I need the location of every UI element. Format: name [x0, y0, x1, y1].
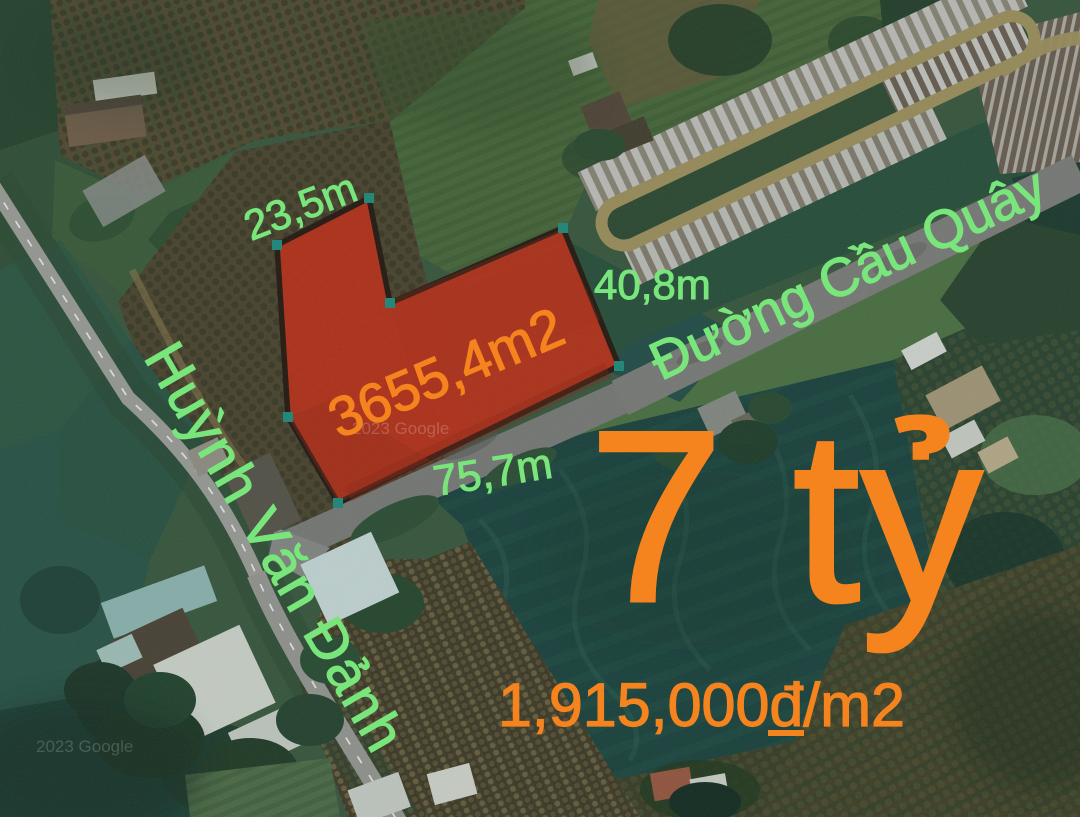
- svg-text:40,8m: 40,8m: [594, 261, 711, 308]
- svg-text:2023 Google: 2023 Google: [36, 737, 133, 756]
- svg-text:1,915,000đ/m2: 1,915,000đ/m2: [498, 671, 905, 739]
- svg-text:7 tỷ: 7 tỷ: [588, 379, 983, 653]
